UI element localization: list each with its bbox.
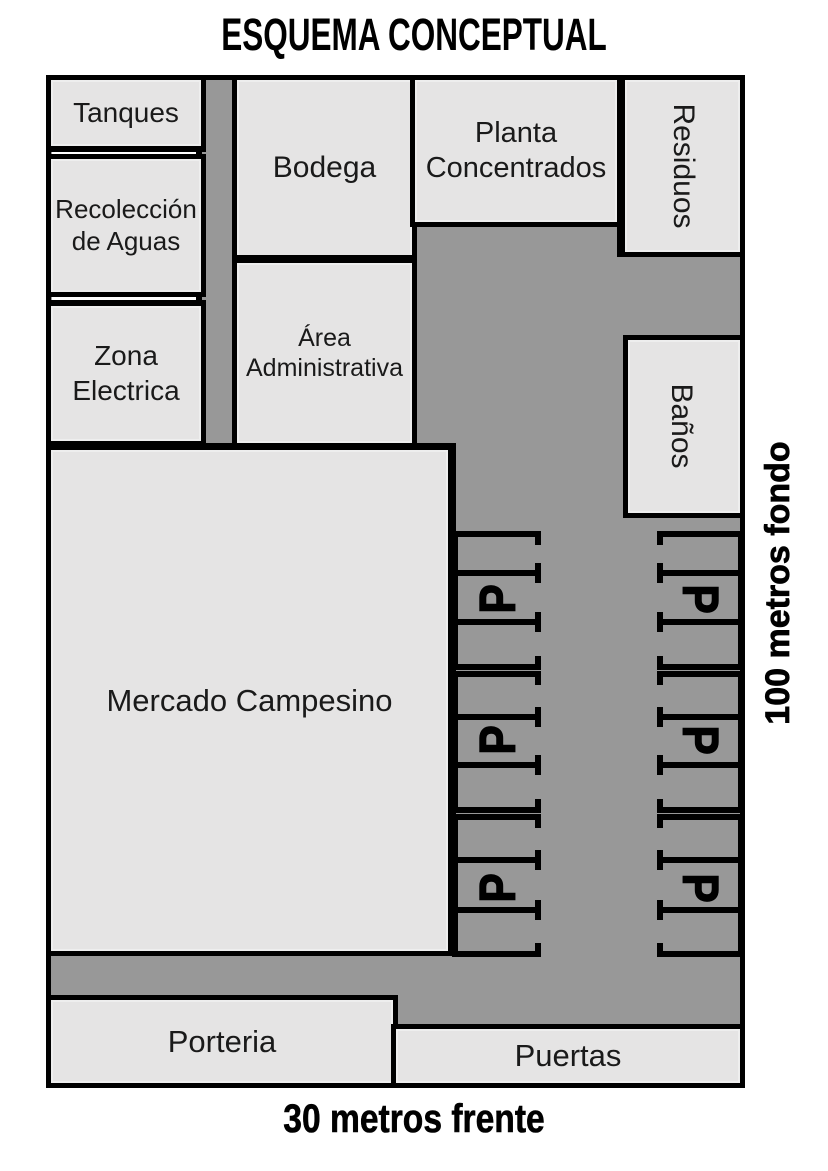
svg-text:P: P <box>469 584 525 613</box>
svg-text:P: P <box>673 725 729 754</box>
svg-text:P: P <box>469 873 525 902</box>
svg-text:P: P <box>469 725 525 754</box>
svg-text:P: P <box>673 873 729 902</box>
svg-text:P: P <box>673 584 729 613</box>
